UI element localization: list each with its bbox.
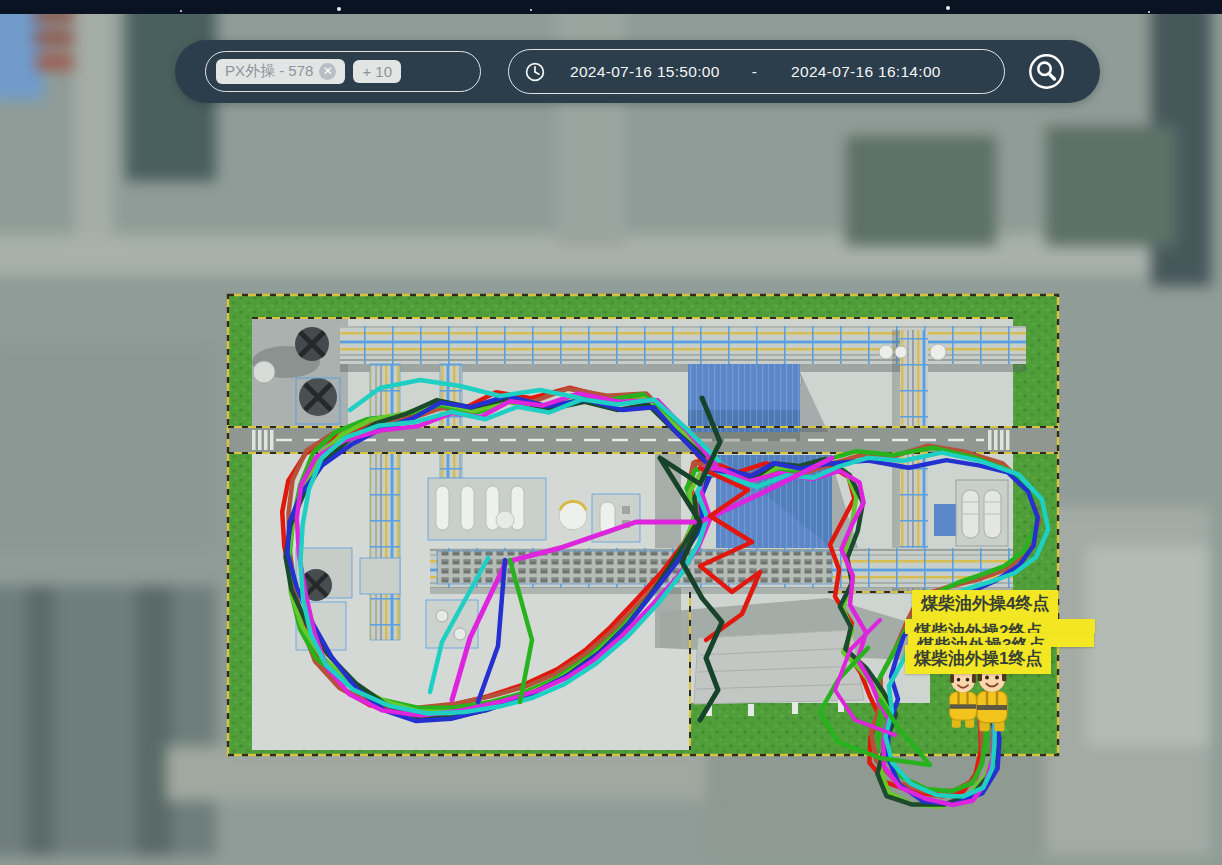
- time-end-value[interactable]: 2024-07-16 16:14:00: [791, 63, 941, 81]
- star-dot: [530, 9, 532, 11]
- sphere-vessel: [930, 344, 946, 360]
- tag-chip-more-label: + 10: [362, 63, 392, 80]
- map-canvas[interactable]: [0, 0, 1222, 865]
- star-dot: [1148, 11, 1150, 13]
- star-dot: [946, 6, 950, 10]
- time-range-picker[interactable]: 2024-07-16 15:50:00 - 2024-07-16 16:14:0…: [508, 49, 1005, 94]
- tag-chip-more[interactable]: + 10: [353, 60, 401, 83]
- tank-farm: [252, 318, 348, 436]
- star-dot: [337, 7, 341, 11]
- app-stage: 煤柴油外操4终点煤柴油外操2终点煤柴油外操3终点煤柴油外操1终点 PX外操 - …: [0, 0, 1222, 865]
- clock-icon: [524, 61, 546, 83]
- circle-search-button[interactable]: [1028, 53, 1065, 90]
- star-dot: [180, 10, 182, 12]
- endpoint-label[interactable]: 煤柴油外操2终点: [905, 619, 1095, 634]
- blue-building-small: [934, 504, 956, 536]
- close-icon[interactable]: ✕: [319, 63, 336, 80]
- tag-chip[interactable]: PX外操 - 578 ✕: [216, 59, 345, 84]
- endpoint-label[interactable]: 煤柴油外操1终点: [905, 645, 1051, 674]
- sphere-vessel: [895, 346, 907, 358]
- search-toolbar: PX外操 - 578 ✕ + 10 2024-07-16 15:50:00 - …: [175, 40, 1100, 103]
- time-separator: -: [752, 63, 757, 81]
- endpoint-label[interactable]: 煤柴油外操4终点: [912, 590, 1058, 619]
- time-start-value[interactable]: 2024-07-16 15:50:00: [570, 63, 720, 81]
- person-tag-input[interactable]: PX外操 - 578 ✕ + 10: [205, 51, 481, 92]
- tag-chip-label: PX外操 - 578: [225, 62, 313, 81]
- top-strip: [0, 0, 1222, 14]
- tank-pad-east: [956, 480, 1008, 546]
- sphere-vessel: [879, 345, 893, 359]
